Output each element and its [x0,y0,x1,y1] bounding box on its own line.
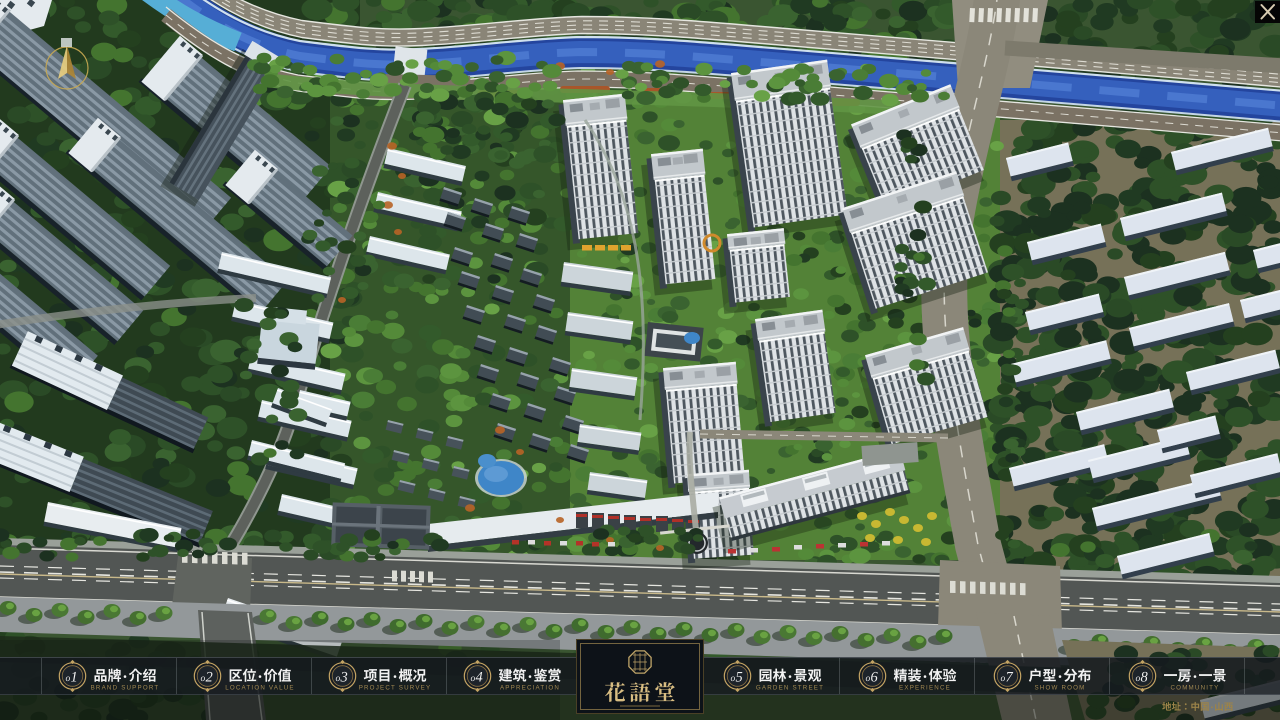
svg-text:COMMUNITY: COMMUNITY [1171,685,1220,692]
svg-text:SHOW ROOM: SHOW ROOM [1034,685,1085,692]
svg-text:LOCATION VALUE: LOCATION VALUE [225,685,295,692]
svg-text:BRAND SUPPORT: BRAND SUPPORT [91,685,160,692]
svg-text:APPRECIATION: APPRECIATION [500,685,560,692]
svg-text:PROJECT SURVEY: PROJECT SURVEY [359,685,432,692]
svg-text:EXPERIENCE: EXPERIENCE [899,685,951,692]
svg-text:GARDEN STREET: GARDEN STREET [756,685,824,692]
